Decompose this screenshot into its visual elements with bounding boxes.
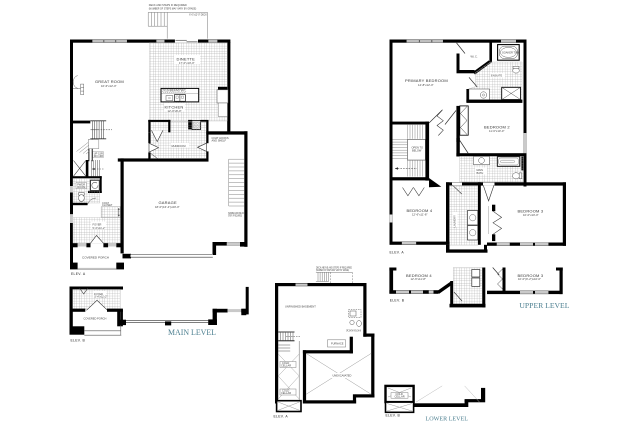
svg-text:SOAKER TUB: SOAKER TUB [502, 51, 519, 55]
svg-text:10'-0"(9'-2")x10'-0": 10'-0"(9'-2")x10'-0" [518, 277, 541, 281]
svg-text:W.I.C.: W.I.C. [471, 55, 478, 59]
svg-text:UNEXCAVATED: UNEXCAVATED [333, 374, 352, 378]
svg-text:ELEV. B: ELEV. B [390, 299, 405, 303]
svg-text:18'-0"(16'-4")x20'-0": 18'-0"(16'-4")x20'-0" [155, 205, 180, 209]
svg-text:FOYER: FOYER [93, 223, 102, 227]
svg-text:LAUNDRY: LAUNDRY [453, 215, 457, 228]
svg-text:DN 13R: DN 13R [94, 154, 103, 158]
svg-text:MAIN LEVEL: MAIN LEVEL [168, 328, 216, 337]
svg-text:6'-0"x12'-0" DECK: 6'-0"x12'-0" DECK [189, 13, 207, 17]
svg-text:CELLAR: CELLAR [281, 364, 291, 368]
svg-text:UPPER LEVEL: UPPER LEVEL [519, 302, 569, 310]
svg-text:AND SHELF: AND SHELF [212, 139, 227, 143]
svg-text:17'-0"x10'-0": 17'-0"x10'-0" [179, 61, 195, 65]
svg-text:ELEV. A: ELEV. A [274, 415, 289, 419]
svg-text:(NUMBER OF STEPS MAY VARY BY G: (NUMBER OF STEPS MAY VARY BY GRADE) [316, 268, 349, 272]
svg-text:(NUMBER OF STEPS MAY VARY BY G: (NUMBER OF STEPS MAY VARY BY GRADE) [149, 6, 197, 10]
svg-text:ELEV. A: ELEV. A [71, 272, 86, 276]
svg-text:BELOW: BELOW [412, 149, 422, 153]
svg-text:FLUSH BREAKFAST BAR: FLUSH BREAKFAST BAR [164, 89, 185, 93]
svg-text:14'-8"x12'-0": 14'-8"x12'-0" [418, 83, 434, 87]
svg-text:3PC BATH ROUGH-IN: 3PC BATH ROUGH-IN [346, 329, 361, 333]
svg-text:11'-6"x10'-0": 11'-6"x10'-0" [489, 129, 504, 133]
svg-text:5'-4"x11'-2": 5'-4"x11'-2" [95, 294, 108, 298]
svg-text:ENSUITE: ENSUITE [491, 74, 503, 78]
svg-text:5'-4"x11'-2": 5'-4"x11'-2" [93, 226, 106, 230]
svg-text:BATH: BATH [477, 171, 484, 175]
svg-text:10'-0"x10'-0": 10'-0"x10'-0" [523, 213, 539, 217]
svg-text:12'-0"x8'-0": 12'-0"x8'-0" [168, 109, 182, 113]
svg-text:COVERED PORCH: COVERED PORCH [82, 256, 109, 260]
svg-text:UNFINISHED BASEMENT: UNFINISHED BASEMENT [285, 305, 316, 309]
svg-text:12'-6"x11'-8": 12'-6"x11'-8" [411, 277, 426, 281]
svg-text:LOWER LEVEL: LOWER LEVEL [426, 416, 469, 423]
svg-text:CELLAR: CELLAR [395, 394, 405, 398]
svg-text:STEPS IF REQUIRED): STEPS IF REQUIRED) [228, 213, 242, 217]
svg-text:MUDROOM: MUDROOM [172, 144, 186, 148]
svg-text:12'-6"x11'-8": 12'-6"x11'-8" [412, 213, 427, 217]
svg-text:ELEV. A: ELEV. A [390, 251, 405, 255]
svg-text:COVERED PORCH: COVERED PORCH [84, 317, 107, 321]
svg-text:CELLAR: CELLAR [281, 391, 291, 395]
svg-text:ELEV. B: ELEV. B [71, 339, 86, 343]
svg-text:16'-6"x12'-0": 16'-6"x12'-0" [101, 84, 117, 88]
svg-text:ELEV. B: ELEV. B [386, 414, 401, 418]
svg-text:ROOM: ROOM [77, 185, 85, 189]
svg-text:FURNACE: FURNACE [331, 341, 344, 345]
